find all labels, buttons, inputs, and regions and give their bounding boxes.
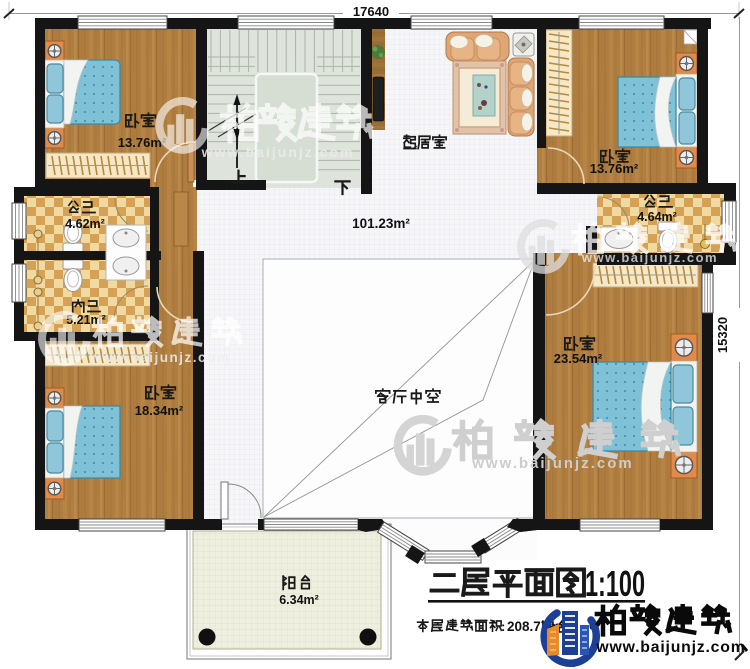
svg-text:17640: 17640 — [353, 4, 389, 19]
svg-text:101.23m²: 101.23m² — [352, 216, 410, 231]
svg-text:www.baijunjz.com: www.baijunjz.com — [89, 350, 231, 365]
svg-text:www.baijunjz.com: www.baijunjz.com — [581, 250, 718, 265]
svg-text:4.64m²: 4.64m² — [637, 210, 677, 224]
svg-text:4.62m²: 4.62m² — [65, 217, 105, 231]
svg-text:15320: 15320 — [715, 317, 730, 353]
svg-text::: : — [501, 619, 505, 634]
svg-text:23.54m²: 23.54m² — [554, 351, 603, 366]
svg-text:18.34m²: 18.34m² — [135, 403, 184, 418]
svg-text:1:100: 1:100 — [585, 563, 645, 604]
svg-text:www.baijunjz.com: www.baijunjz.com — [201, 144, 355, 160]
svg-text:6.34m²: 6.34m² — [279, 593, 319, 607]
svg-text:13.76m²: 13.76m² — [590, 161, 639, 176]
svg-text:www.baijunjz.com: www.baijunjz.com — [471, 455, 633, 472]
svg-text:www.baijunjz.com: www.baijunjz.com — [595, 639, 745, 656]
